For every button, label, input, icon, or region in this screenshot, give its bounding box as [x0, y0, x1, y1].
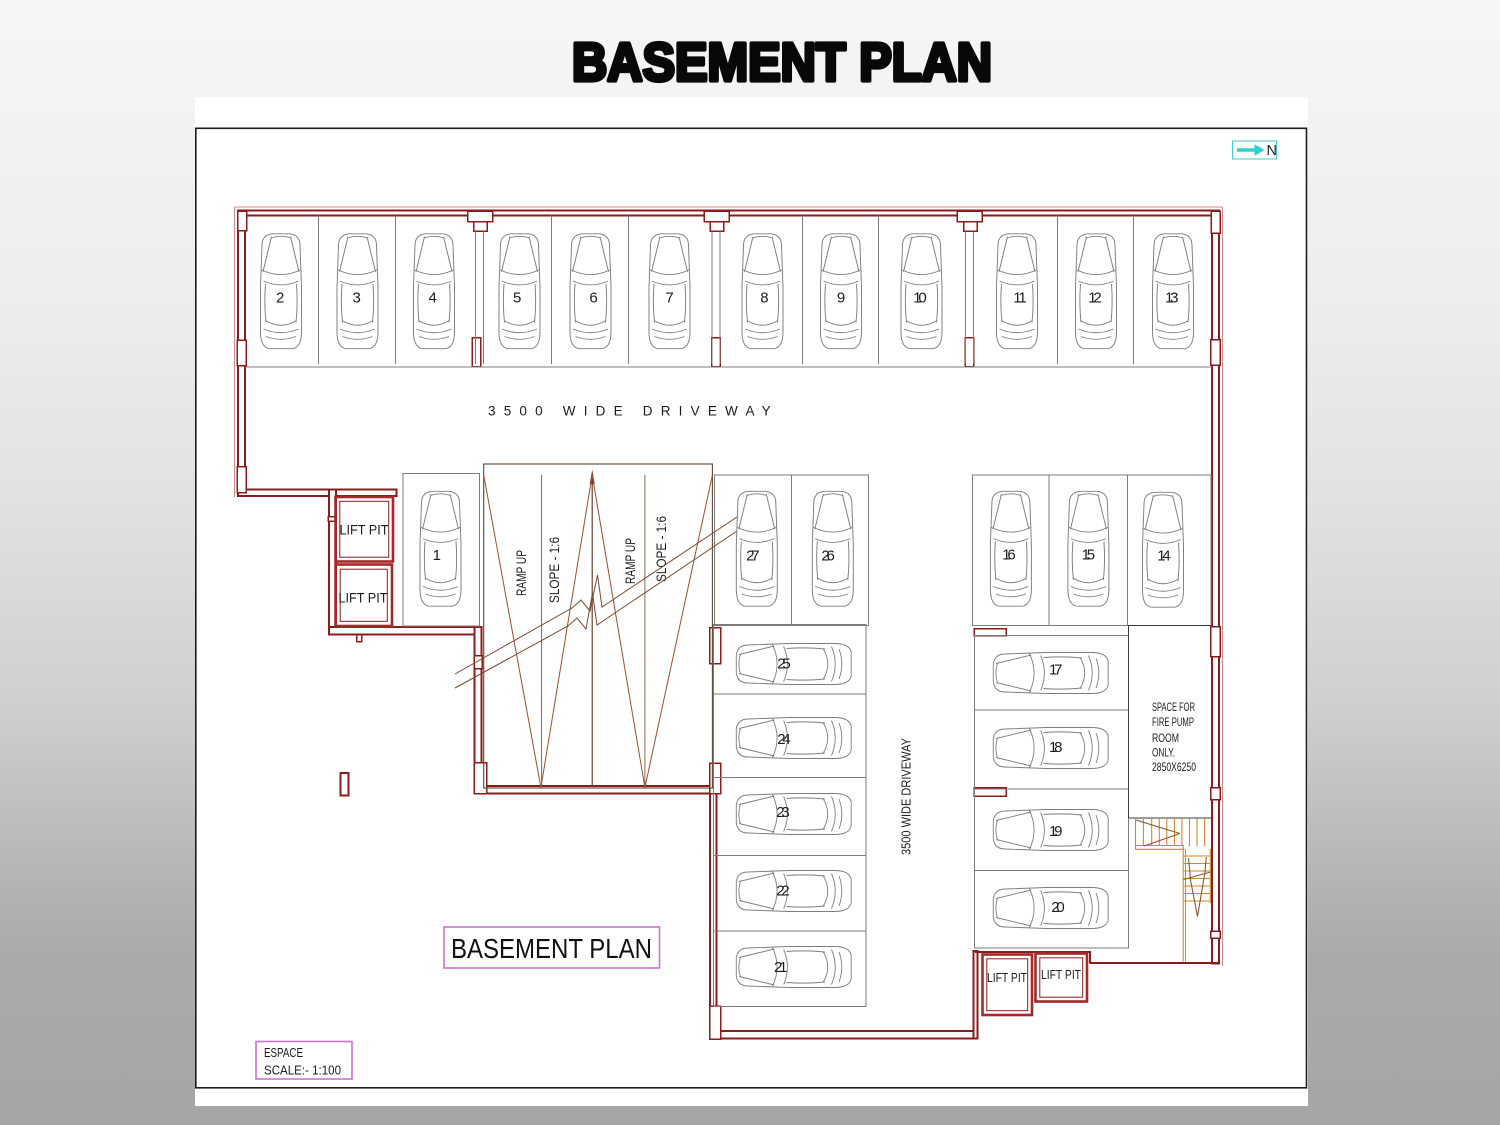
- svg-text:21: 21: [774, 959, 788, 976]
- svg-text:17: 17: [1049, 661, 1063, 678]
- svg-text:LIFT PIT: LIFT PIT: [1041, 967, 1081, 982]
- svg-text:10: 10: [913, 290, 927, 307]
- svg-text:LIFT PIT: LIFT PIT: [987, 970, 1027, 985]
- svg-text:3500 WIDE DRIVEWAY: 3500 WIDE DRIVEWAY: [900, 737, 914, 855]
- svg-text:20: 20: [1051, 899, 1065, 916]
- svg-text:RAMP UP: RAMP UP: [623, 538, 638, 584]
- svg-text:14: 14: [1157, 548, 1171, 565]
- svg-text:11: 11: [1013, 290, 1027, 307]
- svg-text:26: 26: [821, 548, 835, 565]
- svg-text:ONLY.: ONLY.: [1152, 746, 1175, 760]
- svg-text:SCALE:- 1:100: SCALE:- 1:100: [264, 1063, 341, 1078]
- svg-text:2850X6250: 2850X6250: [1152, 760, 1196, 774]
- svg-text:12: 12: [1088, 290, 1102, 307]
- svg-text:9: 9: [837, 290, 845, 307]
- svg-text:23: 23: [776, 804, 790, 821]
- svg-text:13: 13: [1165, 290, 1179, 307]
- svg-text:SPACE FOR: SPACE FOR: [1152, 700, 1195, 714]
- svg-text:LIFT PIT: LIFT PIT: [339, 591, 388, 606]
- svg-text:SLOPE - 1:6: SLOPE - 1:6: [547, 537, 562, 603]
- svg-text:7: 7: [665, 290, 673, 307]
- svg-text:19: 19: [1049, 823, 1063, 840]
- svg-text:3500 WIDE DRIVEWAY: 3500 WIDE DRIVEWAY: [488, 404, 779, 419]
- svg-text:4: 4: [429, 290, 437, 307]
- svg-text:25: 25: [777, 656, 791, 673]
- svg-text:ROOM: ROOM: [1152, 731, 1179, 745]
- svg-text:LIFT PIT: LIFT PIT: [340, 523, 389, 538]
- svg-text:24: 24: [777, 731, 791, 748]
- svg-text:N: N: [1267, 143, 1277, 159]
- svg-text:15: 15: [1082, 547, 1096, 564]
- svg-text:3: 3: [353, 290, 361, 307]
- svg-text:22: 22: [776, 882, 790, 899]
- svg-text:2: 2: [276, 290, 284, 307]
- svg-text:16: 16: [1002, 547, 1016, 564]
- svg-text:1: 1: [433, 547, 441, 564]
- svg-text:8: 8: [760, 290, 768, 307]
- svg-text:5: 5: [513, 290, 521, 307]
- svg-text:BASEMENT PLAN: BASEMENT PLAN: [572, 33, 992, 93]
- svg-text:ESPACE: ESPACE: [264, 1045, 303, 1060]
- svg-text:RAMP UP: RAMP UP: [514, 550, 529, 596]
- svg-text:18: 18: [1049, 739, 1063, 756]
- svg-text:BASEMENT PLAN: BASEMENT PLAN: [451, 933, 652, 964]
- svg-text:SLOPE - 1:6: SLOPE - 1:6: [654, 516, 669, 582]
- svg-text:27: 27: [746, 548, 760, 565]
- svg-text:FIRE PUMP: FIRE PUMP: [1152, 715, 1194, 729]
- svg-text:6: 6: [589, 290, 597, 307]
